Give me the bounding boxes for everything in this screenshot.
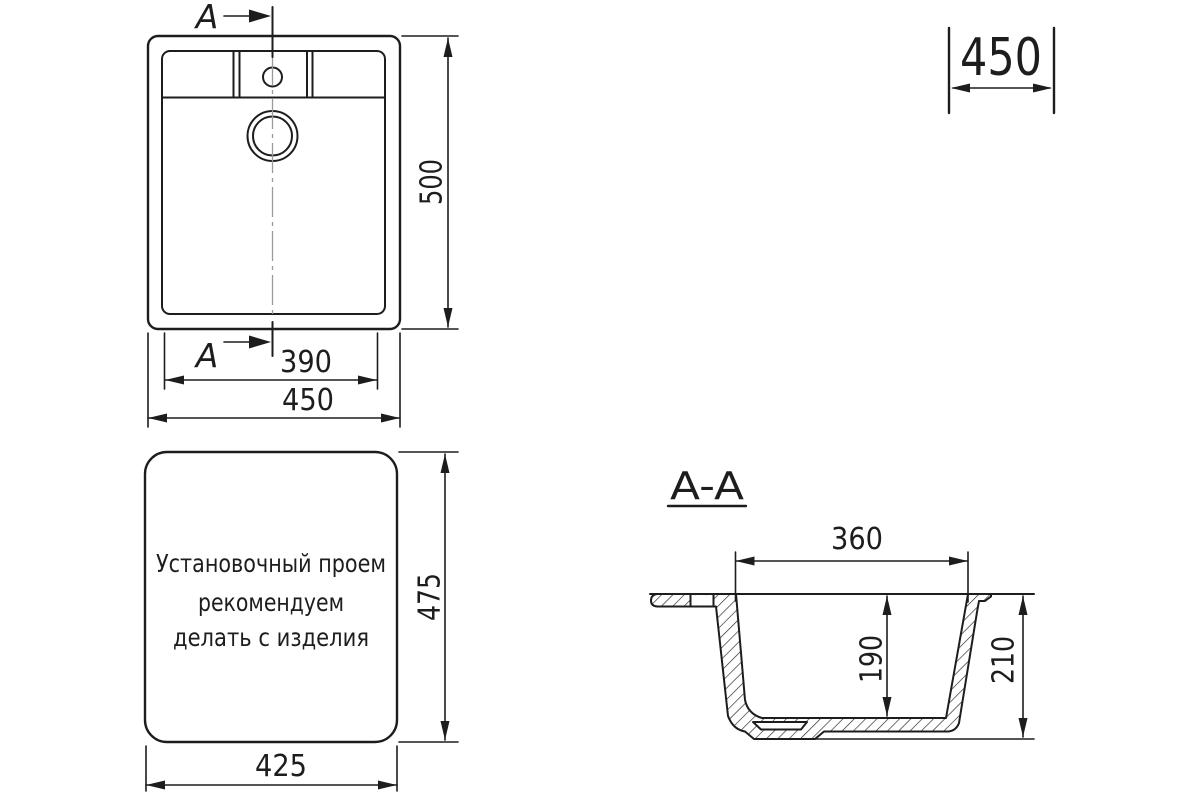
cutout-note-line3: делать с изделия (173, 623, 369, 652)
dim-bowl-top-width-360: 360 (736, 522, 969, 602)
dim-475-value: 475 (413, 573, 448, 621)
section-view: A-A 360 190 (650, 464, 1034, 739)
cutout-view: Установочный проем рекомендуем делать с … (145, 452, 458, 791)
top-view: A A 500 390 (148, 0, 458, 427)
dim-cutout-width-425: 425 (146, 746, 397, 791)
cutout-note-line2: рекомендуем (198, 588, 344, 617)
sink-outer-outline (148, 36, 400, 329)
dim-450-value: 450 (282, 383, 334, 418)
section-title: A-A (670, 464, 744, 508)
sink-technical-drawing: A A 500 390 (0, 0, 1200, 800)
dim-cutout-height-475: 475 (399, 452, 458, 742)
cutout-note-line1: Установочный проем (156, 549, 386, 578)
dim-360-value: 360 (831, 522, 883, 557)
dim-425-value: 425 (255, 749, 307, 784)
dim-210-value: 210 (987, 636, 1022, 684)
dim-bowl-depth-190: 190 (855, 596, 892, 716)
front-width-value: 450 (960, 28, 1042, 88)
section-label-a-bottom: A (194, 336, 219, 375)
rim-clamp-slot (692, 595, 713, 605)
drawing-canvas: A A 500 390 (0, 0, 1200, 800)
dim-190-value: 190 (855, 635, 890, 683)
dim-500-value: 500 (415, 159, 450, 205)
dim-overall-length-500: 500 (402, 36, 458, 329)
section-label-a-top: A (194, 0, 219, 36)
section-material (651, 594, 991, 739)
dim-390-value: 390 (280, 345, 332, 380)
front-width-dimension: 450 (949, 28, 1054, 113)
section-mark-top: A (194, 0, 273, 57)
sink-bowl-outline (162, 51, 385, 314)
